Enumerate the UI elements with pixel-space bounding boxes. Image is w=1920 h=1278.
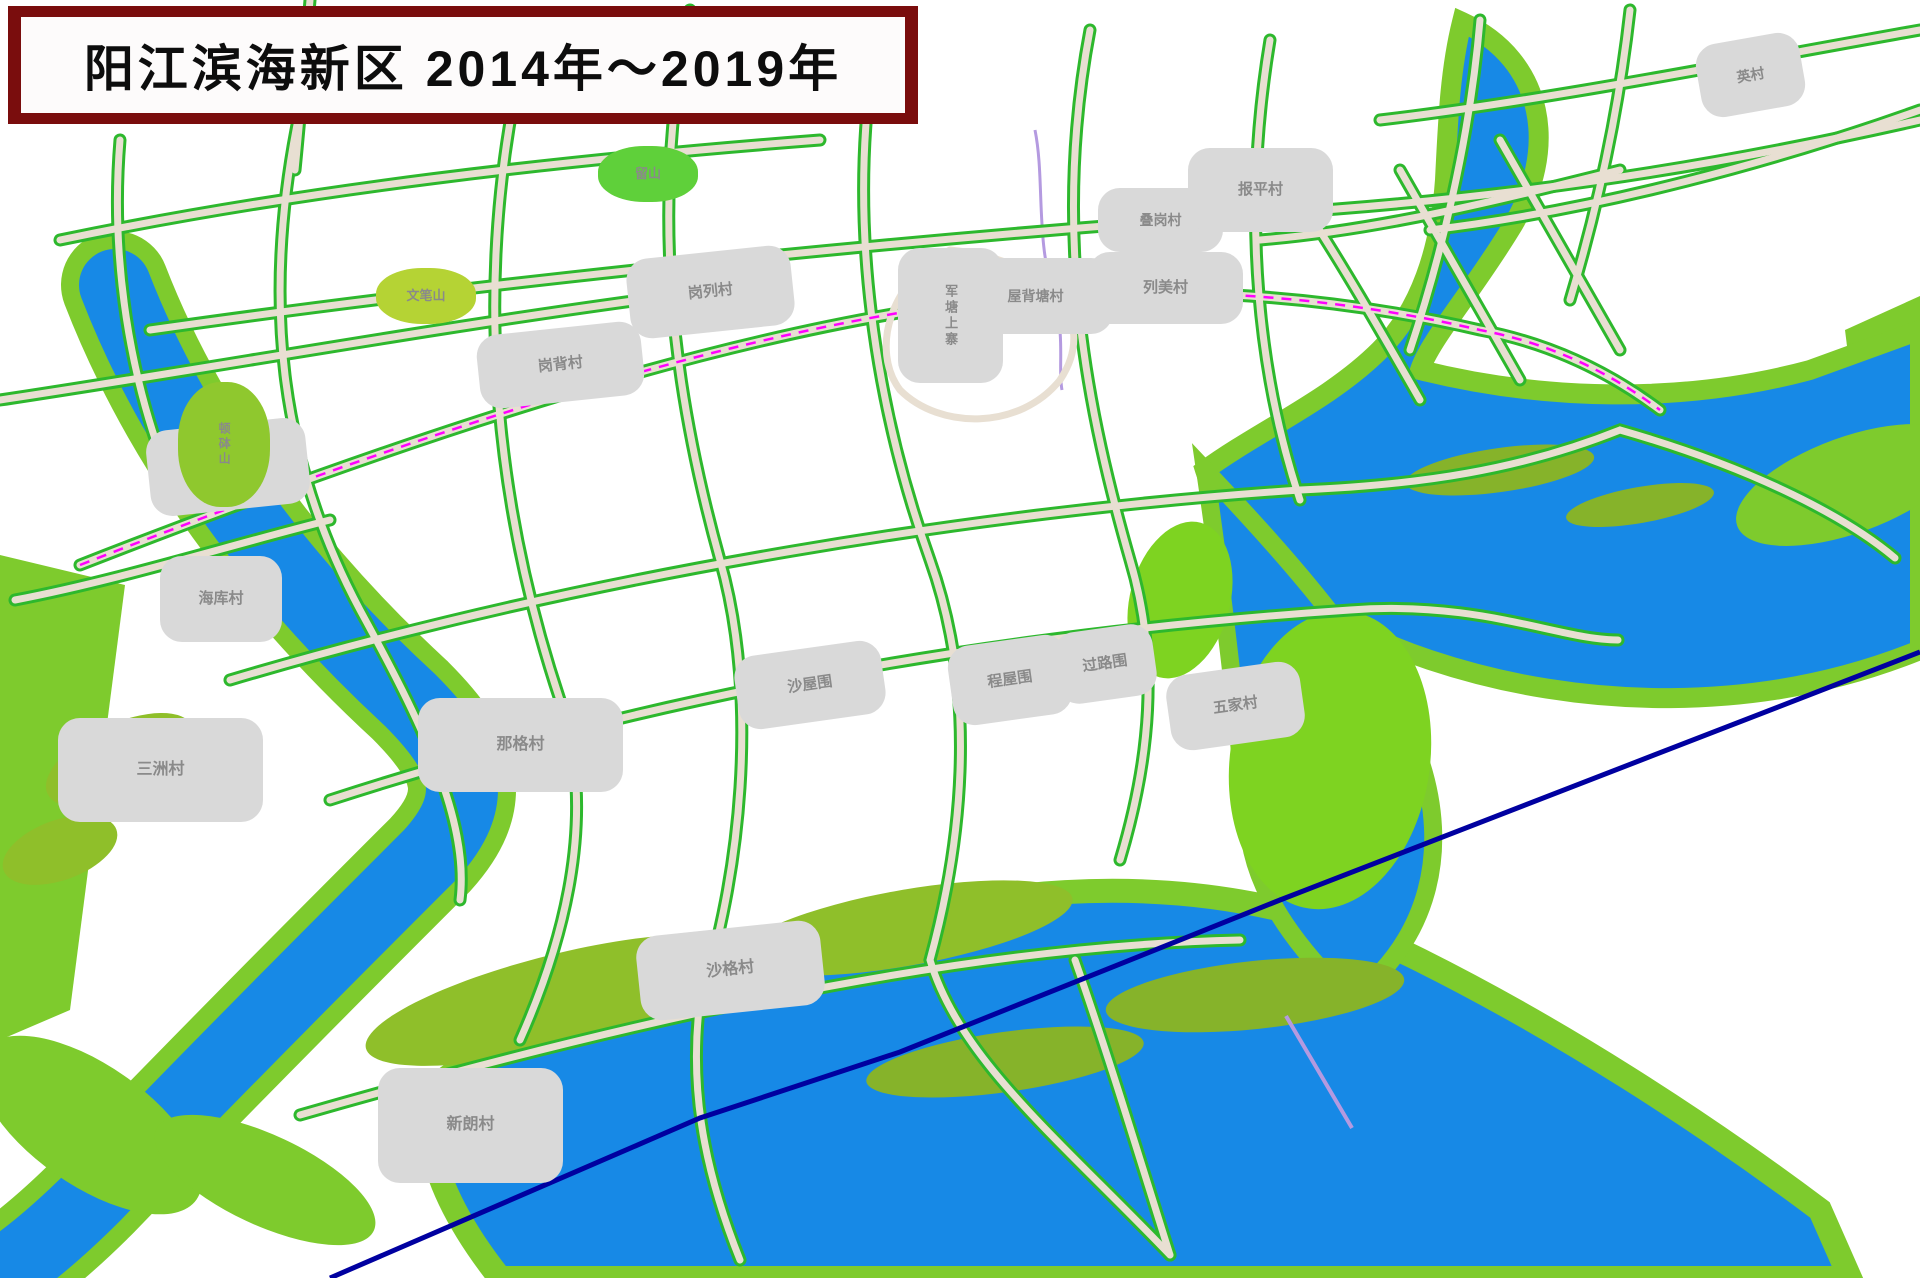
village-area-label: 沙屋围 [786, 673, 833, 697]
village-area: 过路围 [1050, 621, 1159, 706]
village-area-label: 岗背村 [537, 354, 584, 376]
village-area: 三洲村 [58, 718, 263, 822]
village-area-label: 叠岗村 [1140, 212, 1182, 229]
hill-area-label: 顿砵山 [217, 422, 231, 467]
village-area-label: 那格村 [496, 736, 544, 755]
village-area-label: 军塘上寨 [943, 284, 958, 348]
village-area: 岗列村 [624, 244, 796, 341]
village-area: 海库村 [160, 556, 282, 642]
page-title: 阳江滨海新区 2014年～2019年 [84, 29, 842, 101]
village-area: 列美村 [1088, 252, 1243, 324]
hill-area: 留山 [598, 146, 698, 202]
basemap-art [0, 0, 1920, 1278]
village-area-label: 过路围 [1081, 652, 1128, 676]
village-area-label: 报平村 [1238, 181, 1283, 199]
village-area: 新朗村 [378, 1068, 563, 1183]
village-area-label: 三洲村 [136, 761, 184, 780]
village-area-label: 五家村 [1212, 694, 1259, 718]
title-banner: 阳江滨海新区 2014年～2019年 [8, 6, 918, 124]
village-area-label: 新朗村 [446, 1116, 494, 1135]
village-area: 军塘上寨 [898, 248, 1003, 383]
hill-area-label: 文笔山 [406, 288, 445, 303]
hill-area-label: 留山 [635, 166, 661, 181]
village-area: 那格村 [418, 698, 623, 792]
village-area-label: 岗列村 [687, 281, 734, 303]
village-area-label: 沙格村 [706, 959, 756, 983]
village-area-label: 屋背塘村 [1008, 288, 1064, 305]
village-area-label: 列美村 [1143, 279, 1188, 297]
title-banner-inner: 阳江滨海新区 2014年～2019年 [21, 17, 905, 113]
village-area: 报平村 [1188, 148, 1333, 232]
village-area-label: 海库村 [198, 590, 243, 608]
map-canvas: 阳江滨海新区 2014年～2019年 塘尾村海库村岗背村岗列村那格村三洲村新朗村… [0, 0, 1920, 1278]
hill-area: 顿砵山 [178, 382, 270, 507]
hill-area: 文笔山 [376, 268, 476, 324]
village-area-label: 程屋围 [986, 668, 1033, 692]
village-area-label: 英村 [1735, 64, 1765, 85]
